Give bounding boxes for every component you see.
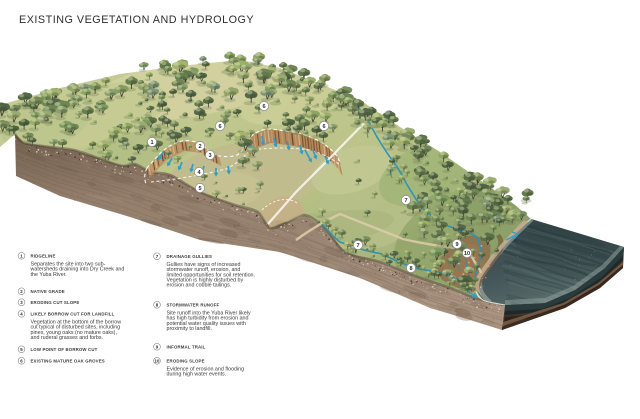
- svg-text:LOW POINT OF BORROW CUT: LOW POINT OF BORROW CUT: [31, 347, 98, 352]
- svg-text:6: 6: [322, 124, 325, 130]
- svg-text:EXISTING VEGETATION AND HYDROL: EXISTING VEGETATION AND HYDROLOGY: [19, 14, 254, 26]
- svg-text:8: 8: [409, 266, 412, 272]
- svg-text:LIKELY BORROW CUT FOR LANDFILL: LIKELY BORROW CUT FOR LANDFILL: [31, 312, 115, 317]
- svg-text:5: 5: [198, 186, 201, 192]
- svg-text:ERODING CUT SLOPE: ERODING CUT SLOPE: [31, 300, 80, 305]
- svg-text:9: 9: [455, 242, 458, 248]
- svg-text:INFORMAL TRAIL: INFORMAL TRAIL: [167, 345, 206, 350]
- svg-text:DRAINAGE GULLIES: DRAINAGE GULLIES: [167, 254, 213, 259]
- svg-text:1: 1: [150, 140, 153, 146]
- svg-text:6: 6: [218, 124, 221, 130]
- svg-text:erosion and cobble tailings.: erosion and cobble tailings.: [167, 283, 232, 289]
- svg-text:NATIVE GRADE: NATIVE GRADE: [31, 289, 65, 294]
- svg-text:ERODING SLOPE: ERODING SLOPE: [167, 359, 205, 364]
- svg-text:10: 10: [464, 251, 470, 257]
- svg-text:and ruderal grasses and forbs.: and ruderal grasses and forbs.: [31, 335, 103, 341]
- svg-text:EXISTING MATURE OAK GROVES: EXISTING MATURE OAK GROVES: [31, 359, 105, 364]
- svg-text:3: 3: [208, 153, 211, 159]
- svg-text:RIDGELINE: RIDGELINE: [31, 254, 56, 259]
- svg-text:STORMWATER RUNOFF: STORMWATER RUNOFF: [167, 303, 220, 308]
- svg-text:10: 10: [155, 359, 160, 364]
- svg-text:the Yuba River.: the Yuba River.: [31, 272, 67, 278]
- svg-text:7: 7: [356, 243, 359, 249]
- svg-text:during high water events.: during high water events.: [167, 372, 227, 378]
- svg-text:2: 2: [198, 144, 201, 150]
- svg-text:6: 6: [262, 104, 265, 110]
- svg-text:7: 7: [404, 198, 407, 204]
- svg-text:proximity to landfill.: proximity to landfill.: [167, 326, 212, 332]
